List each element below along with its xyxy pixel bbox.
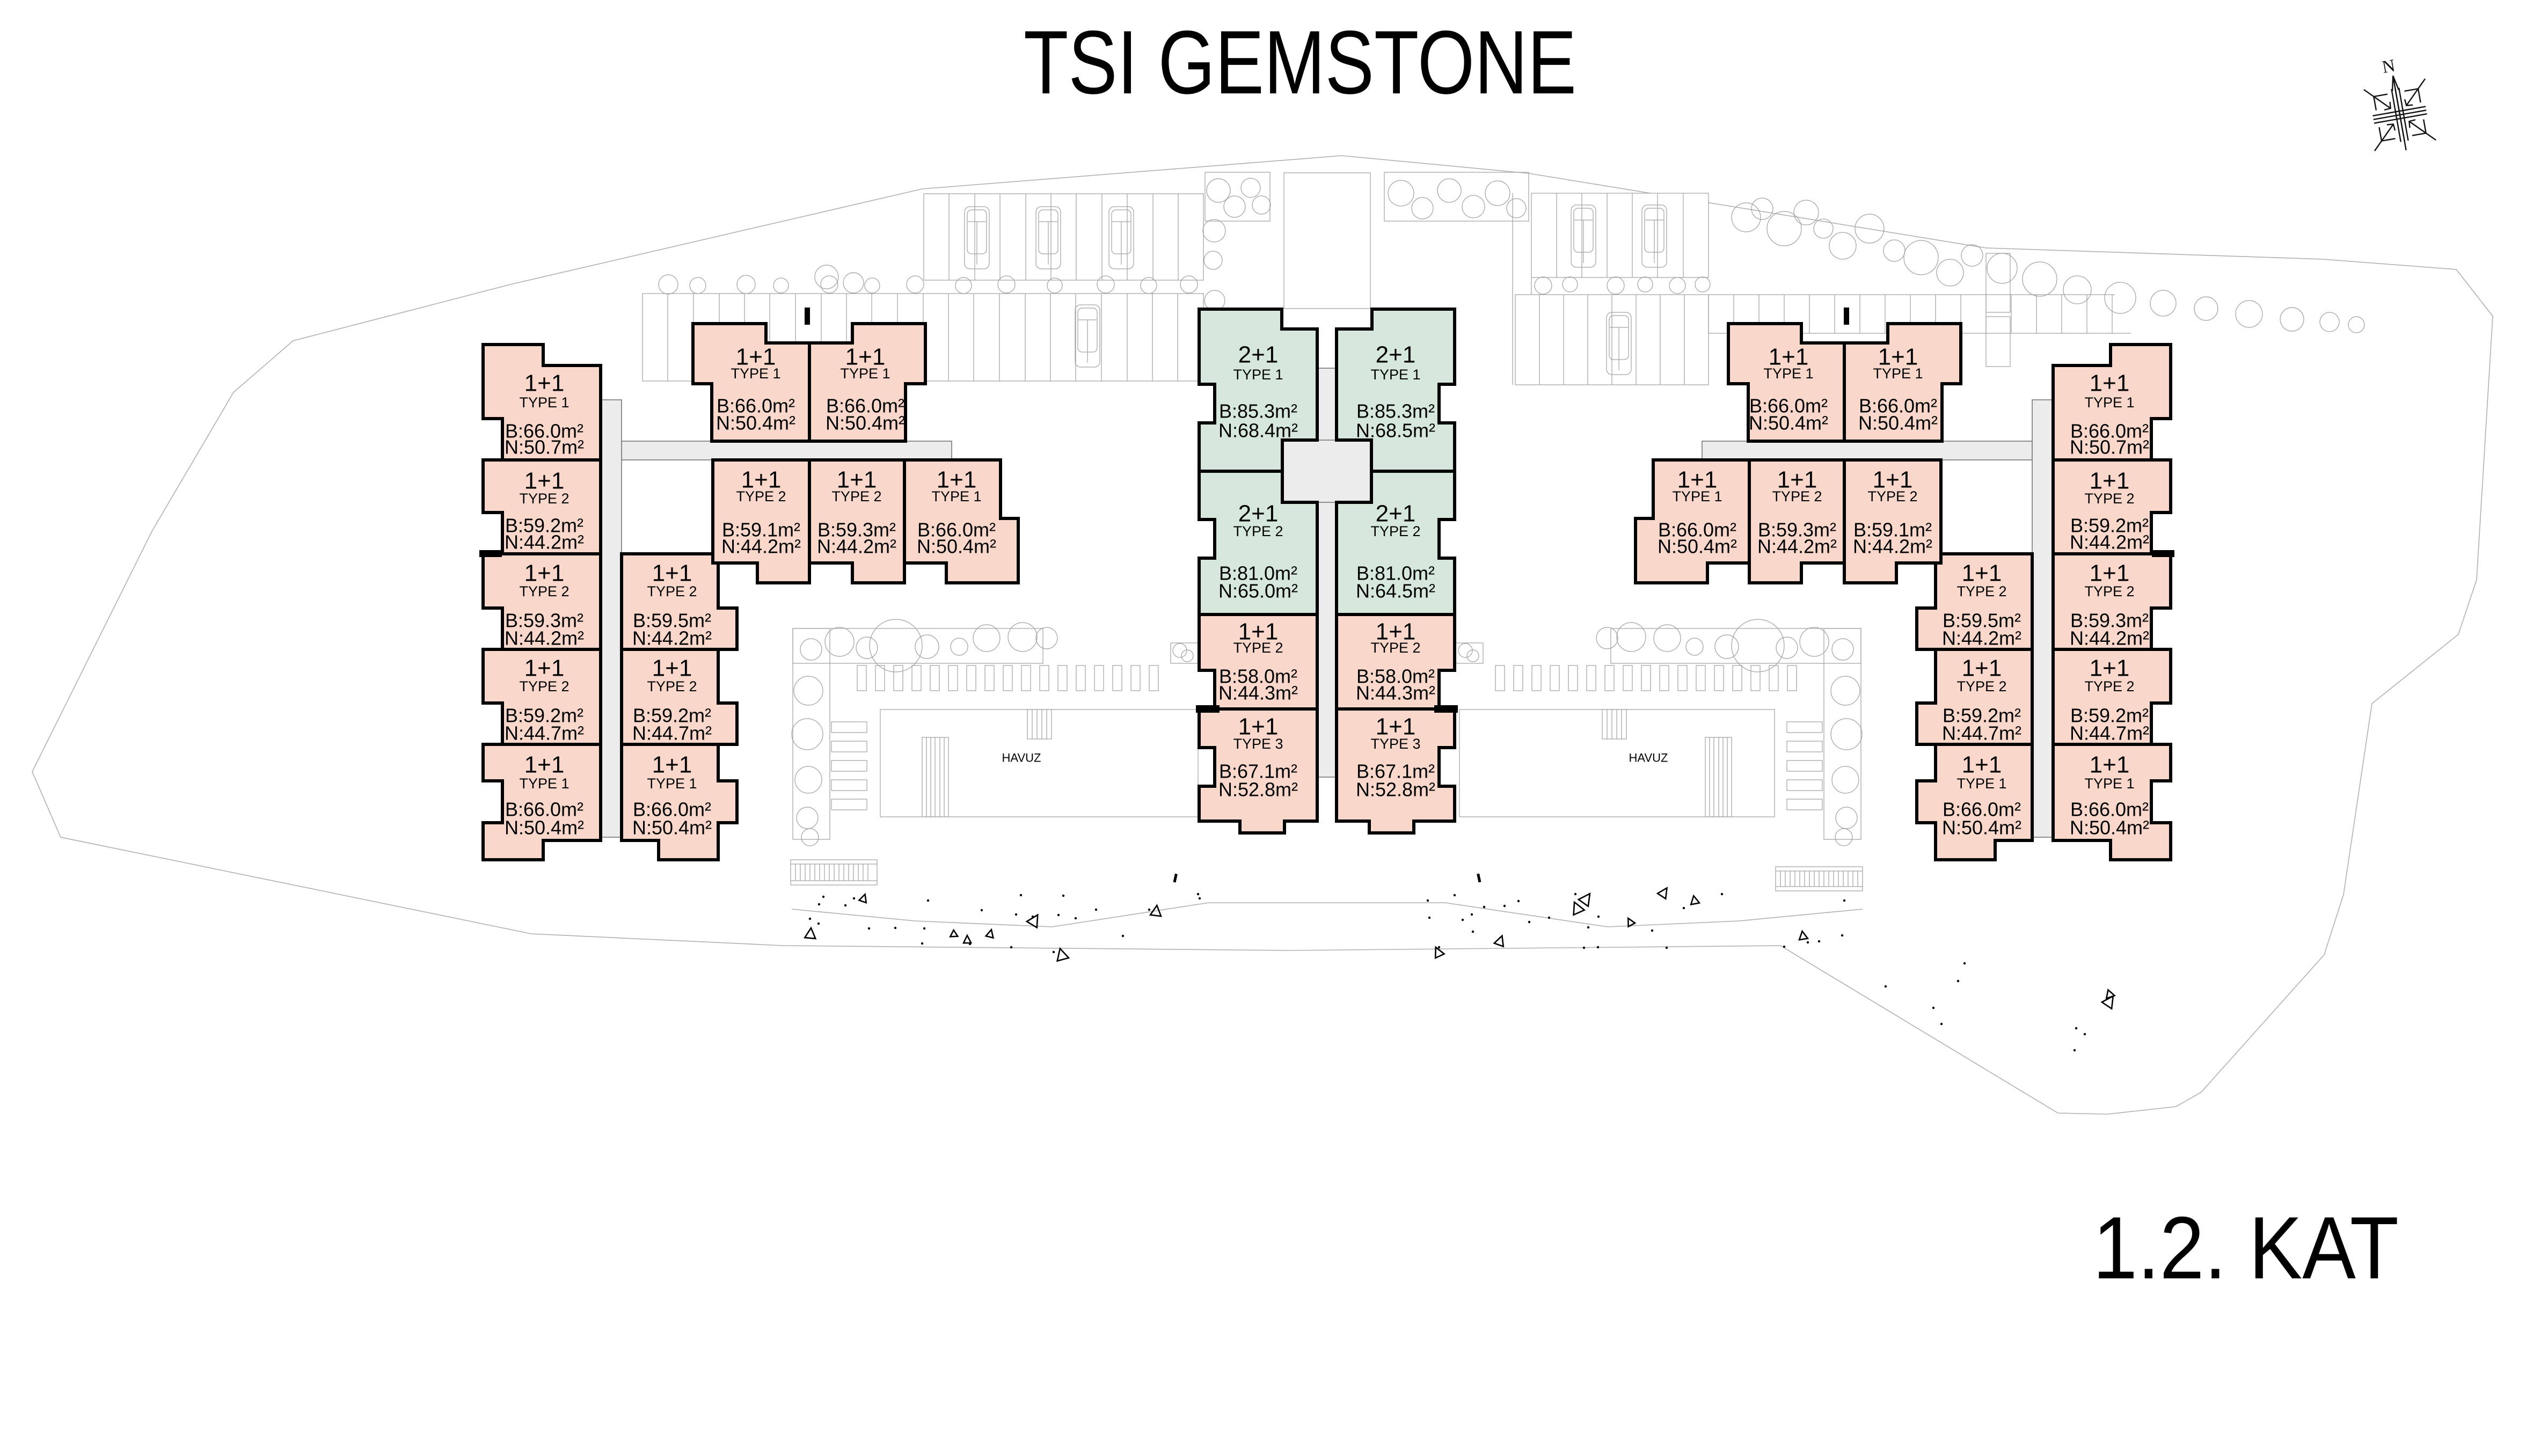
svg-text:TYPE 1: TYPE 1	[519, 775, 569, 792]
svg-text:N:50.4m²: N:50.4m²	[1658, 536, 1737, 558]
svg-text:1+1: 1+1	[524, 655, 565, 682]
svg-text:TYPE 2: TYPE 2	[1370, 640, 1420, 656]
svg-text:N:44.2m²: N:44.2m²	[632, 627, 712, 649]
svg-text:N:44.3m²: N:44.3m²	[1218, 682, 1298, 704]
svg-text:TYPE 2: TYPE 2	[2084, 678, 2134, 694]
svg-text:1+1: 1+1	[2090, 370, 2130, 397]
svg-text:1+1: 1+1	[652, 655, 692, 682]
svg-text:TYPE 1: TYPE 1	[1370, 367, 1420, 383]
svg-text:TYPE 2: TYPE 2	[647, 583, 697, 599]
svg-text:B:85.3m²: B:85.3m²	[1219, 400, 1297, 422]
svg-text:N:44.2m²: N:44.2m²	[721, 536, 801, 558]
svg-text:N:65.0m²: N:65.0m²	[1218, 580, 1298, 602]
svg-text:2+1: 2+1	[1238, 342, 1279, 368]
svg-text:TSI GEMSTONE: TSI GEMSTONE	[1024, 12, 1576, 113]
svg-text:TYPE 1: TYPE 1	[1956, 775, 2006, 792]
svg-text:TYPE 2: TYPE 2	[1772, 488, 1822, 504]
svg-text:1+1: 1+1	[524, 370, 565, 397]
svg-text:TYPE 2: TYPE 2	[2084, 491, 2134, 507]
svg-text:TYPE 1: TYPE 1	[931, 488, 981, 504]
svg-text:TYPE 2: TYPE 2	[1233, 523, 1283, 539]
svg-text:N:44.2m²: N:44.2m²	[505, 531, 584, 553]
svg-text:N:50.4m²: N:50.4m²	[1942, 817, 2021, 839]
svg-text:TYPE 1: TYPE 1	[1763, 365, 1813, 382]
svg-text:N:44.2m²: N:44.2m²	[1757, 536, 1837, 558]
svg-text:N:44.7m²: N:44.7m²	[2070, 722, 2149, 744]
svg-text:TYPE 2: TYPE 2	[519, 678, 569, 694]
svg-text:1+1: 1+1	[1962, 655, 2002, 682]
svg-text:1+1: 1+1	[2090, 752, 2130, 778]
svg-text:N:44.7m²: N:44.7m²	[505, 722, 584, 744]
svg-text:N:44.2m²: N:44.2m²	[2070, 627, 2149, 649]
svg-text:1+1: 1+1	[524, 752, 565, 778]
svg-text:TYPE 2: TYPE 2	[1956, 583, 2006, 599]
svg-text:2+1: 2+1	[1376, 342, 1416, 368]
svg-text:N:44.3m²: N:44.3m²	[1356, 682, 1435, 704]
svg-text:TYPE 3: TYPE 3	[1370, 736, 1420, 752]
svg-text:TYPE 1: TYPE 1	[2084, 394, 2134, 411]
svg-text:N:68.5m²: N:68.5m²	[1356, 420, 1435, 442]
svg-text:1+1: 1+1	[2090, 560, 2130, 587]
svg-text:TYPE 1: TYPE 1	[1873, 365, 1923, 382]
svg-text:N:50.4m²: N:50.4m²	[505, 817, 584, 839]
svg-text:TYPE 1: TYPE 1	[519, 394, 569, 411]
svg-text:N:50.4m²: N:50.4m²	[2070, 817, 2149, 839]
svg-text:TYPE 2: TYPE 2	[1233, 640, 1283, 656]
svg-text:TYPE 2: TYPE 2	[1370, 523, 1420, 539]
svg-text:TYPE 2: TYPE 2	[519, 491, 569, 507]
svg-text:1+1: 1+1	[652, 752, 692, 778]
svg-text:TYPE 1: TYPE 1	[647, 775, 697, 792]
svg-text:N:50.4m²: N:50.4m²	[632, 817, 712, 839]
svg-text:TYPE 1: TYPE 1	[2084, 775, 2134, 792]
svg-text:B:85.3m²: B:85.3m²	[1356, 400, 1435, 422]
svg-text:TYPE 2: TYPE 2	[1867, 488, 1917, 504]
svg-text:N:50.4m²: N:50.4m²	[1858, 412, 1938, 434]
svg-text:TYPE 2: TYPE 2	[736, 488, 786, 504]
svg-text:N:44.2m²: N:44.2m²	[1942, 627, 2021, 649]
svg-text:N:44.7m²: N:44.7m²	[632, 722, 712, 744]
svg-text:N:44.7m²: N:44.7m²	[1942, 722, 2021, 744]
svg-text:N:50.7m²: N:50.7m²	[505, 436, 584, 458]
svg-text:N:44.2m²: N:44.2m²	[2070, 531, 2149, 553]
svg-text:HAVUZ: HAVUZ	[1002, 751, 1041, 765]
svg-text:HAVUZ: HAVUZ	[1629, 751, 1668, 765]
svg-text:TYPE 2: TYPE 2	[519, 583, 569, 599]
svg-text:TYPE 2: TYPE 2	[831, 488, 881, 504]
svg-text:TYPE 2: TYPE 2	[647, 678, 697, 694]
svg-text:N:50.4m²: N:50.4m²	[716, 412, 795, 434]
svg-text:N:52.8m²: N:52.8m²	[1356, 779, 1435, 801]
svg-text:N:50.4m²: N:50.4m²	[917, 536, 996, 558]
svg-text:N:44.2m²: N:44.2m²	[817, 536, 896, 558]
svg-text:N:50.7m²: N:50.7m²	[2070, 436, 2149, 458]
svg-text:TYPE 3: TYPE 3	[1233, 736, 1283, 752]
svg-text:TYPE 2: TYPE 2	[2084, 583, 2134, 599]
svg-text:TYPE 1: TYPE 1	[1672, 488, 1722, 504]
svg-text:N:52.8m²: N:52.8m²	[1218, 779, 1298, 801]
svg-text:1+1: 1+1	[1962, 752, 2002, 778]
svg-text:N:50.4m²: N:50.4m²	[826, 412, 905, 434]
svg-text:N:68.4m²: N:68.4m²	[1218, 420, 1298, 442]
svg-text:TYPE 1: TYPE 1	[1233, 367, 1283, 383]
svg-text:TYPE 1: TYPE 1	[731, 365, 780, 382]
svg-text:N:64.5m²: N:64.5m²	[1356, 580, 1435, 602]
svg-text:N:50.4m²: N:50.4m²	[1749, 412, 1828, 434]
svg-text:N:44.2m²: N:44.2m²	[505, 627, 584, 649]
svg-text:1+1: 1+1	[1962, 560, 2002, 587]
svg-text:1+1: 1+1	[652, 560, 692, 587]
svg-text:1+1: 1+1	[524, 560, 565, 587]
svg-text:N:44.2m²: N:44.2m²	[1853, 536, 1932, 558]
svg-text:TYPE 1: TYPE 1	[840, 365, 890, 382]
svg-text:1+1: 1+1	[2090, 655, 2130, 682]
svg-text:1.2. KAT: 1.2. KAT	[2093, 1198, 2399, 1297]
svg-text:TYPE 2: TYPE 2	[1956, 678, 2006, 694]
